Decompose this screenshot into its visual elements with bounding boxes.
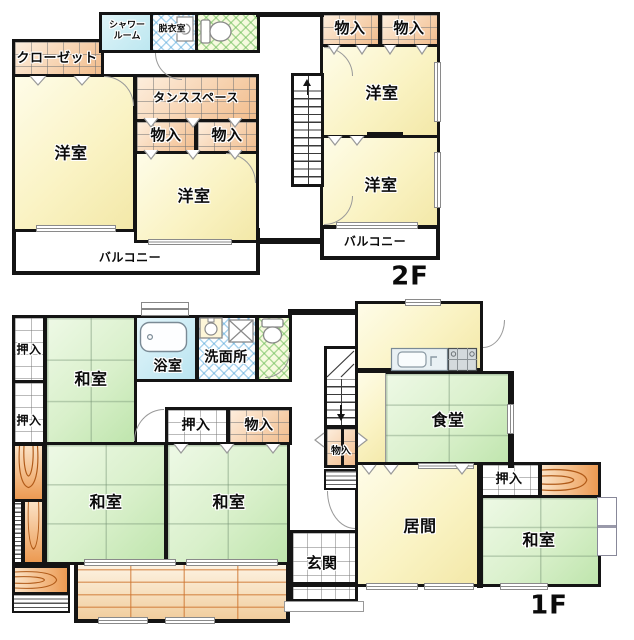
- window: [405, 299, 441, 306]
- label-storage-2f-c: 物入: [334, 21, 365, 37]
- label-shower-line1: シャワー: [109, 21, 145, 30]
- label-entrance: 玄関: [306, 556, 337, 572]
- label-bathroom: 浴室: [154, 360, 183, 375]
- label-dressing-room: 脱衣室: [158, 25, 185, 34]
- window: [84, 559, 176, 566]
- label-washroom: 洗面所: [204, 351, 248, 366]
- door-opening-marks: [326, 136, 368, 145]
- entrance-step: [284, 601, 364, 612]
- label-dining: 食堂: [431, 413, 464, 430]
- label-floor-2f: 2F: [391, 263, 429, 290]
- washing-machine-icon: [228, 319, 254, 343]
- label-storage-2f-b: 物入: [211, 128, 242, 144]
- exterior-deck-strip: [12, 593, 70, 613]
- veranda: [74, 561, 290, 623]
- label-storage-under-stairs: 物入: [331, 447, 351, 458]
- entrance-threshold: [290, 582, 358, 587]
- wall-segment: [256, 238, 324, 244]
- tokonoma-alcove: [12, 565, 70, 595]
- bathtub-icon: [139, 321, 189, 354]
- room-oshiire-1f-b: [12, 380, 46, 445]
- wood-grain: [25, 502, 42, 562]
- toilet-icon: [260, 317, 286, 345]
- label-shower-line2: ルーム: [114, 32, 141, 41]
- wall-segment: [256, 12, 324, 17]
- label-storage-2f-a: 物入: [150, 128, 181, 144]
- floor-plan: クローゼット シャワー ルーム 脱衣室 タンススペース 物入 物入 物入 物入 …: [0, 0, 634, 640]
- window: [500, 583, 548, 590]
- bay-window: [597, 497, 617, 556]
- tokonoma-alcove: [12, 443, 45, 502]
- door-opening-marks: [170, 444, 286, 453]
- label-living: 居間: [403, 519, 436, 536]
- window: [98, 617, 148, 624]
- bath-bay-window: [141, 302, 189, 316]
- wood-grain: [542, 465, 598, 495]
- kitchen-sink-icon: [391, 348, 449, 372]
- door-arc: [327, 491, 355, 529]
- label-oshiire-a: 押入: [16, 344, 41, 357]
- kitchen-corridor-strip: [355, 371, 387, 467]
- wood-grain: [15, 568, 67, 592]
- window: [186, 559, 278, 566]
- label-storage-2f-d: 物入: [393, 21, 424, 37]
- label-western-left: 洋室: [54, 146, 87, 163]
- toilet-icon: [199, 16, 233, 46]
- label-oshiire-right: 押入: [495, 473, 522, 487]
- label-storage-mid: 物入: [245, 419, 274, 434]
- window: [434, 62, 441, 122]
- wall-segment: [288, 309, 358, 315]
- door-opening-marks: [326, 45, 434, 54]
- label-japanese-top-left: 和室: [74, 372, 107, 389]
- wall-segment: [477, 462, 483, 588]
- sink-icon: [199, 317, 224, 340]
- door-opening-marks: [315, 433, 324, 447]
- window: [434, 152, 441, 208]
- window: [148, 239, 232, 245]
- tokonoma-alcove: [539, 462, 601, 498]
- label-western-middle: 洋室: [177, 189, 210, 206]
- label-western-bottom-right: 洋室: [364, 178, 397, 195]
- label-oshiire-b: 押入: [16, 415, 41, 428]
- wall-segment: [367, 132, 403, 138]
- stove-icon: [448, 348, 478, 372]
- window: [165, 617, 215, 624]
- label-japanese-right: 和室: [522, 533, 555, 550]
- label-closet-2f: クローゼット: [16, 52, 97, 66]
- stair-down-arrow-icon: [337, 414, 345, 421]
- door-opening-marks: [140, 150, 252, 159]
- window: [507, 404, 514, 434]
- shoe-cabinet: [324, 469, 358, 490]
- label-japanese-bottom-middle: 和室: [212, 495, 245, 512]
- window: [336, 222, 418, 229]
- door-arc: [483, 320, 505, 348]
- window: [424, 583, 474, 590]
- door-opening-marks: [358, 433, 367, 447]
- staircase-1f: [324, 346, 358, 428]
- label-japanese-bottom-left: 和室: [89, 495, 122, 512]
- label-western-top-right: 洋室: [365, 86, 398, 103]
- window: [366, 583, 418, 590]
- label-tansu-space: タンススペース: [153, 92, 239, 105]
- stair-break-line: [327, 349, 355, 379]
- door-opening-marks: [360, 465, 472, 474]
- label-floor-1f: 1F: [530, 592, 568, 619]
- label-oshiire-mid: 押入: [182, 419, 211, 434]
- door-opening-marks: [22, 76, 102, 85]
- staircase-2f: [291, 73, 324, 187]
- label-balcony-left: バルコニー: [99, 252, 161, 265]
- tokonoma-alcove: [22, 499, 45, 565]
- label-balcony-right: バルコニー: [344, 236, 406, 249]
- door-arc: [134, 409, 164, 441]
- wood-grain: [15, 446, 42, 499]
- window: [36, 225, 116, 232]
